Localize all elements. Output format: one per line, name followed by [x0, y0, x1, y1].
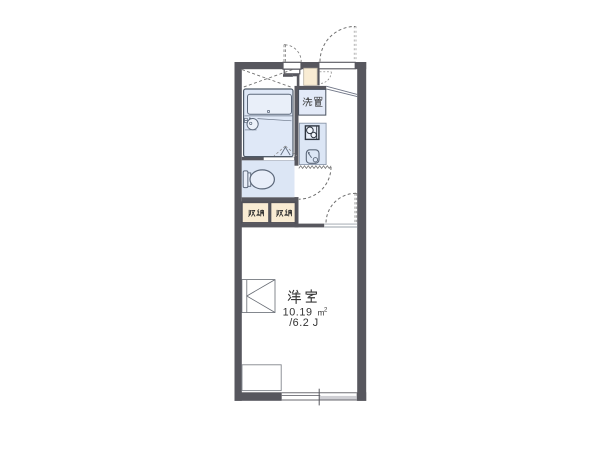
- svg-text:/6.2 J: /6.2 J: [289, 317, 318, 329]
